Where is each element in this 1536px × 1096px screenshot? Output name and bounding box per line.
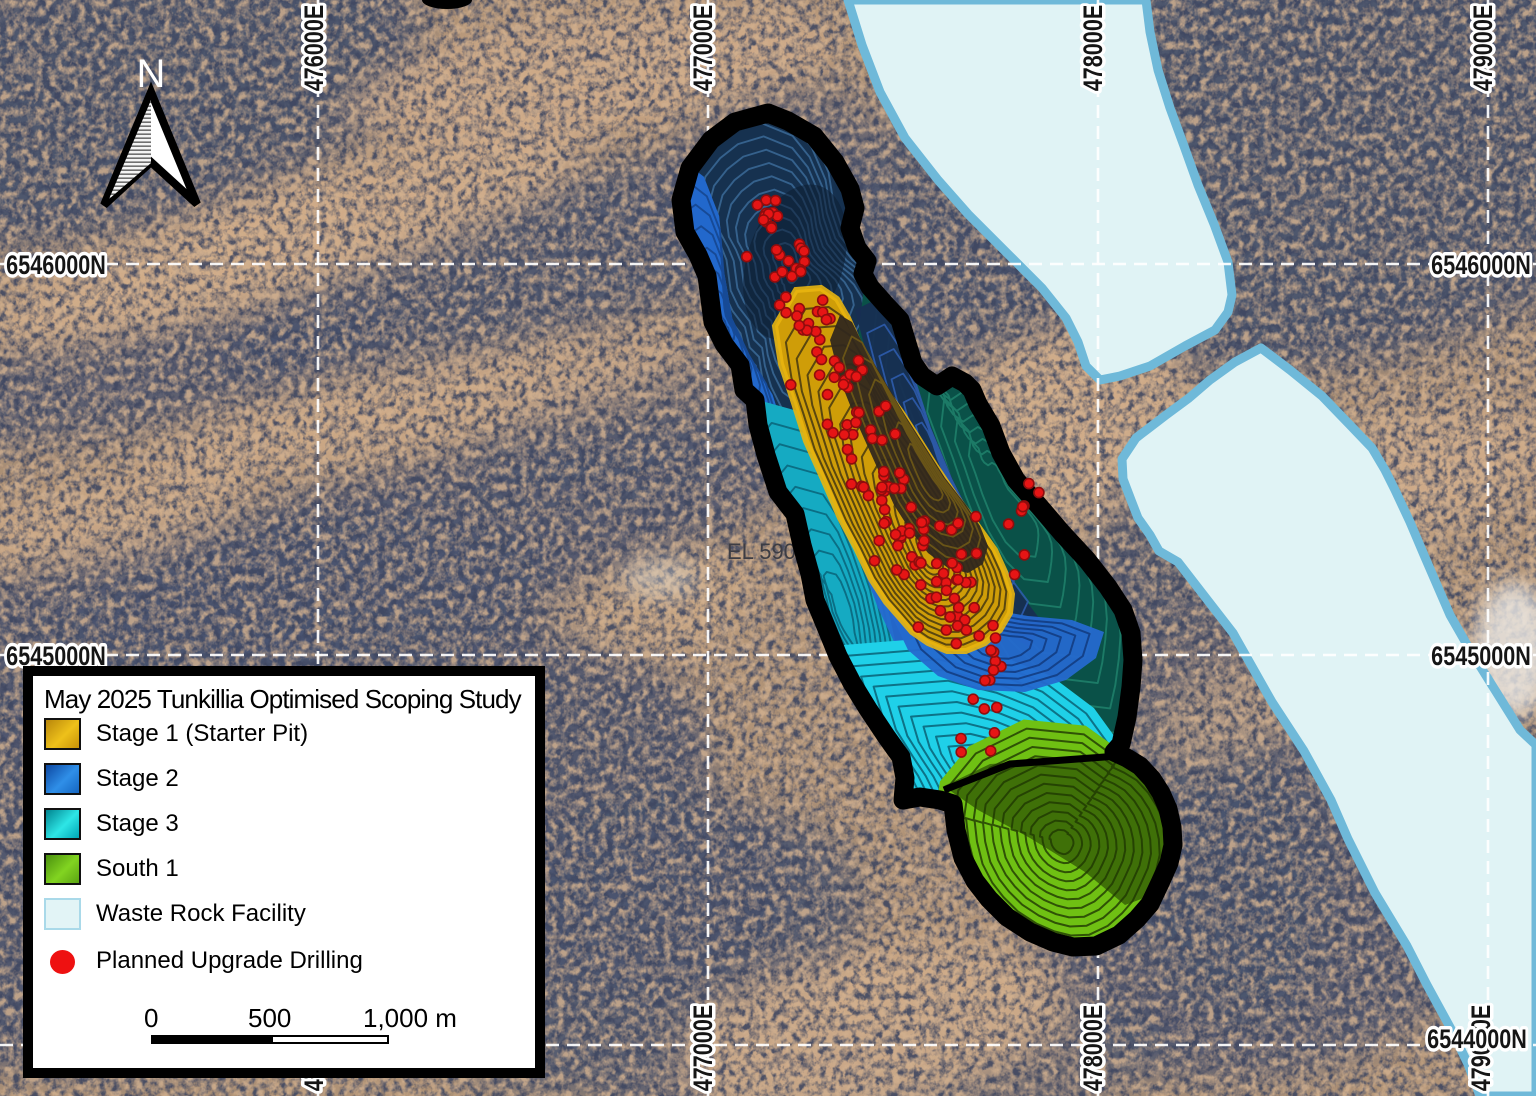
svg-text:6546000N: 6546000N	[6, 251, 106, 281]
svg-text:476000E: 476000E	[300, 5, 330, 91]
svg-text:478000E: 478000E	[1079, 1005, 1109, 1091]
svg-text:N: N	[137, 52, 166, 96]
svg-text:478000E: 478000E	[1079, 5, 1109, 91]
svg-text:6545000N: 6545000N	[1431, 642, 1531, 672]
svg-text:477000E: 477000E	[689, 5, 719, 91]
svg-text:479000E: 479000E	[1469, 5, 1499, 91]
svg-text:477000E: 477000E	[689, 1005, 719, 1091]
svg-text:6546000N: 6546000N	[1431, 251, 1531, 281]
svg-text:6544000N: 6544000N	[1427, 1025, 1527, 1055]
